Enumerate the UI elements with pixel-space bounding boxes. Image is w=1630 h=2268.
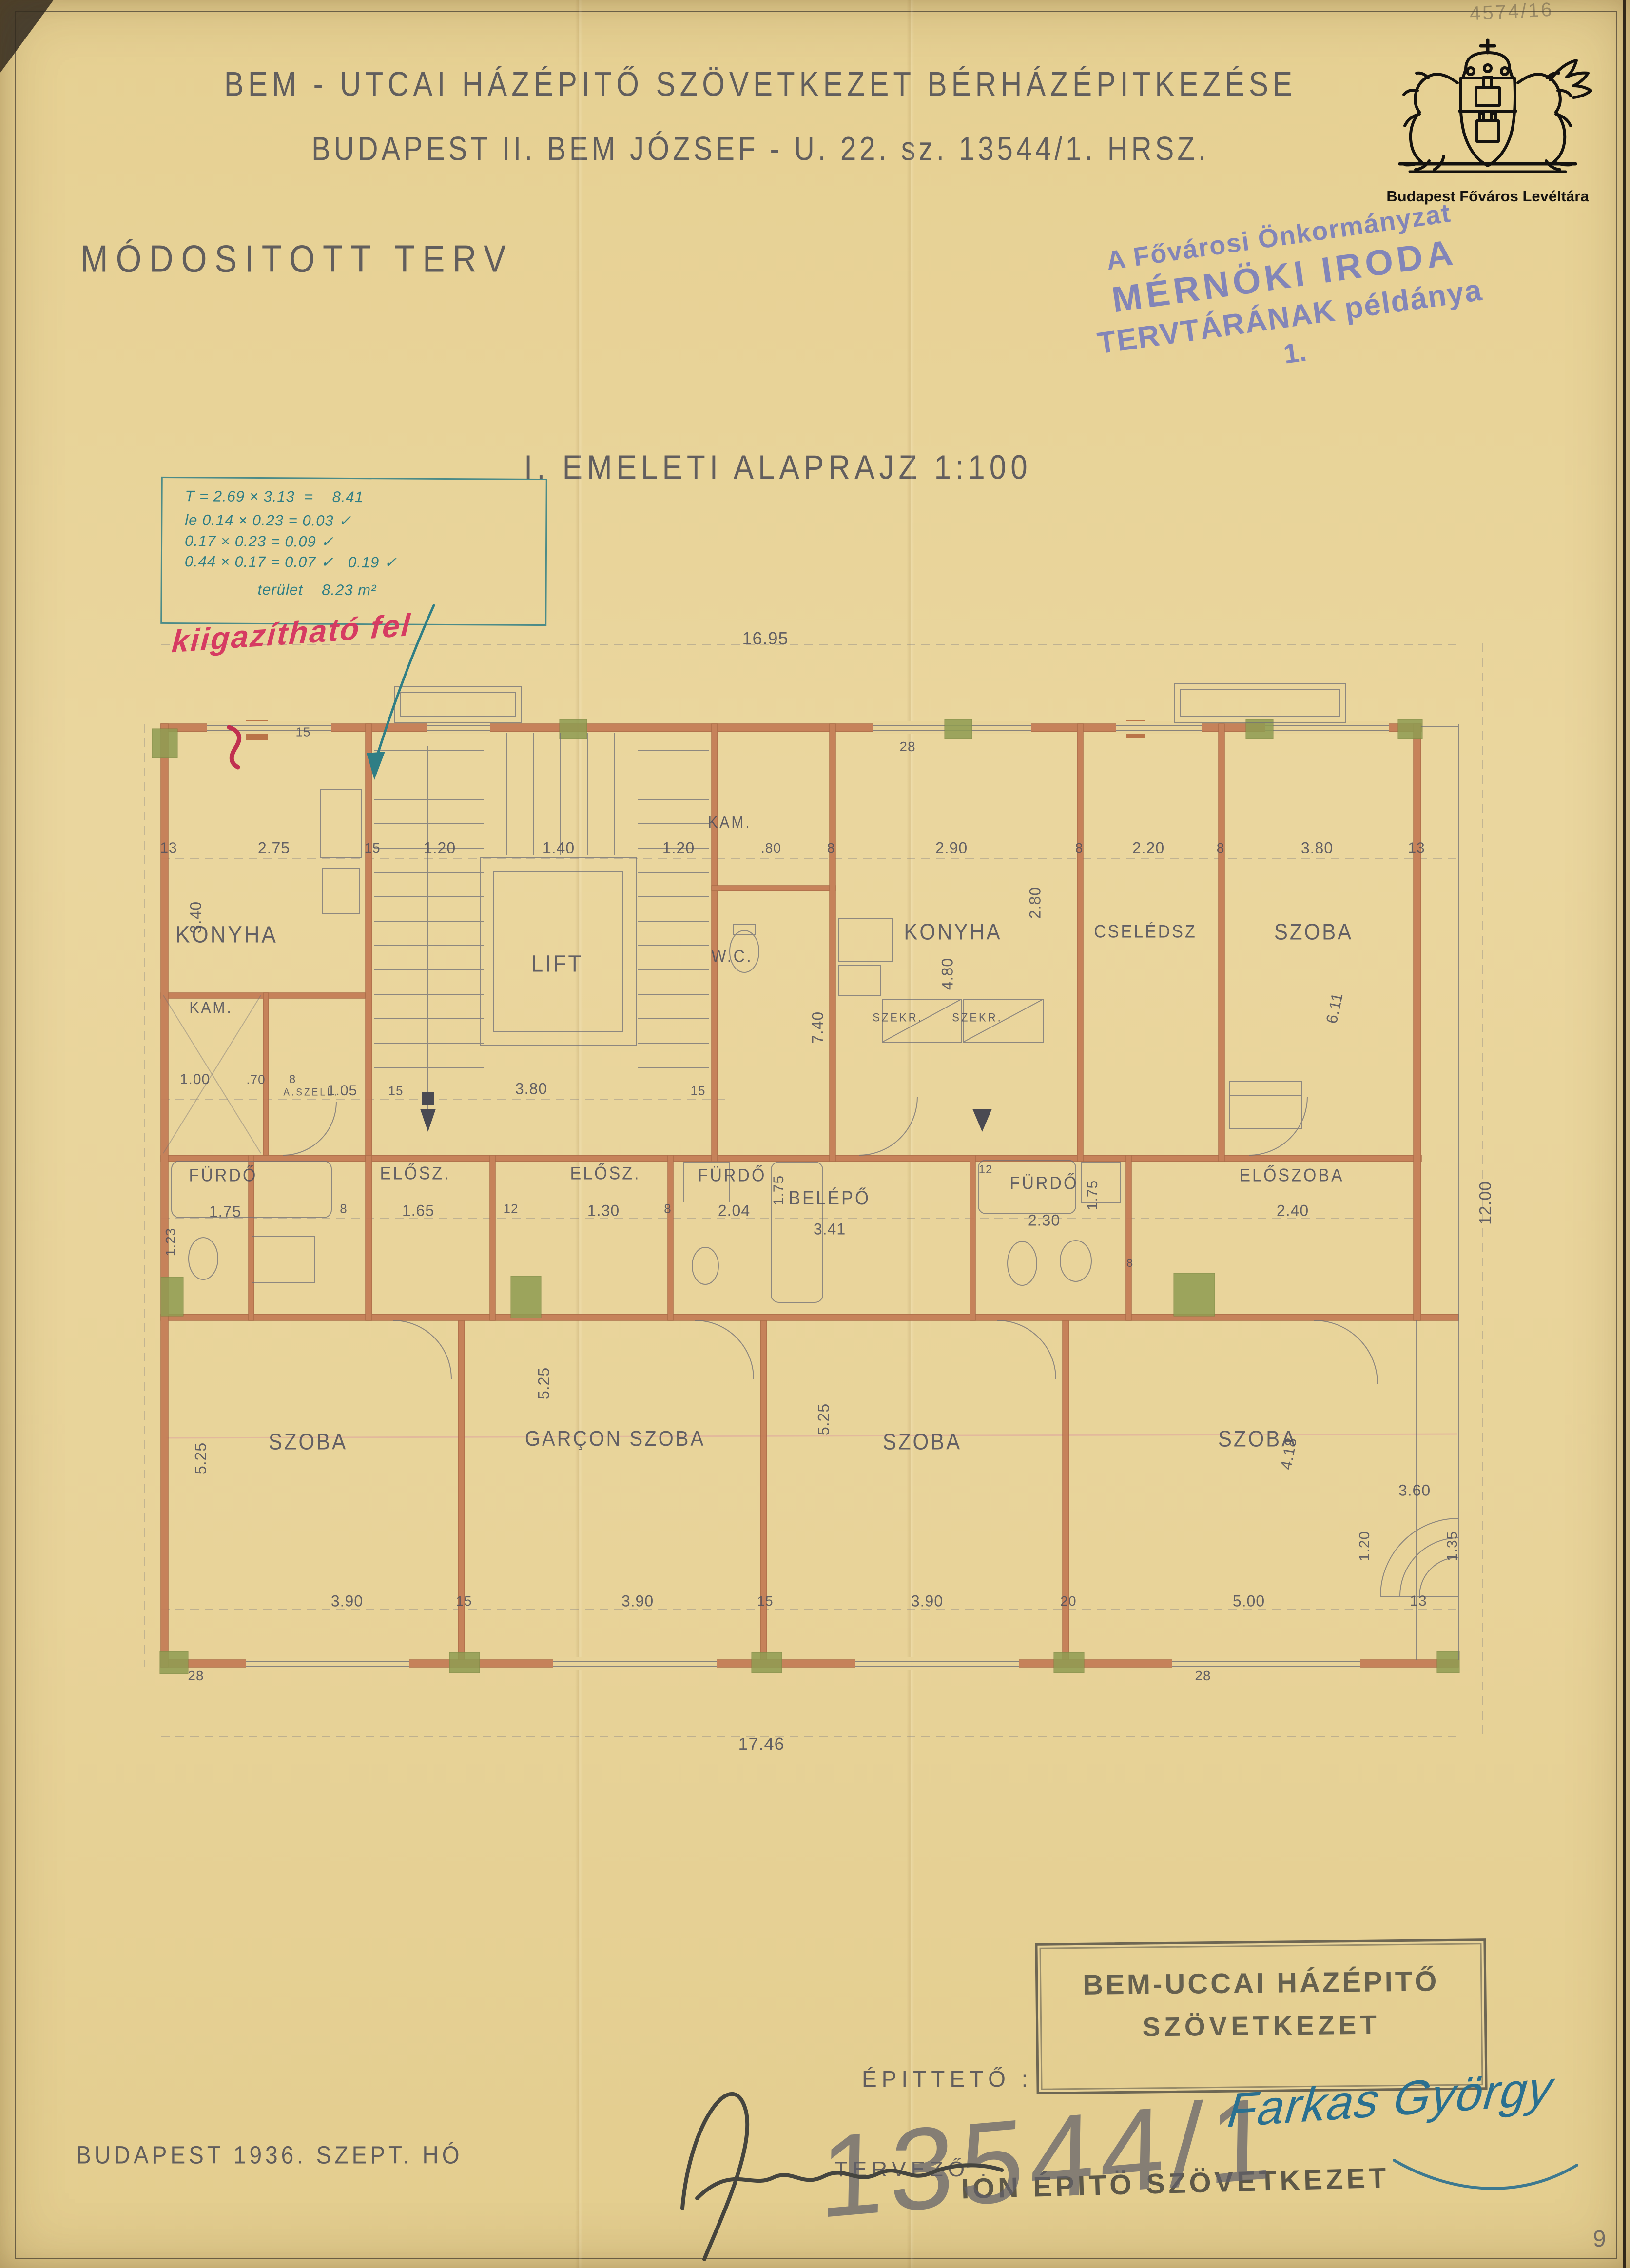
dim-label: 3.90 xyxy=(621,1592,654,1610)
dim-label: 8 xyxy=(1126,1257,1133,1270)
dim-label: 15 xyxy=(691,1084,706,1099)
coat-of-arms-icon xyxy=(1371,33,1605,184)
dim-label: 7.40 xyxy=(809,1011,827,1044)
dim-label: 1.23 xyxy=(163,1228,178,1257)
dim-label: 15 xyxy=(757,1593,773,1609)
dim-label: 15 xyxy=(388,1084,404,1099)
dim-label: 28 xyxy=(188,1668,204,1684)
room-label: BELÉPŐ xyxy=(789,1187,871,1209)
dim-label: 5.25 xyxy=(535,1367,553,1399)
builder-stamp-line1: BEM-UCCAI HÁZÉPITŐ xyxy=(1038,1964,1484,2002)
dim-label: 5.25 xyxy=(815,1403,833,1435)
calc-line: 0.17 × 0.23 = 0.09 ✓ xyxy=(185,531,531,553)
room-label: SZEKR. xyxy=(873,1011,923,1025)
dim-label: 2.20 xyxy=(1132,839,1164,857)
dim-label: 16.95 xyxy=(742,628,788,649)
dim-label: 8 xyxy=(664,1202,671,1217)
dim-label: 6.11 xyxy=(1322,991,1346,1025)
dim-label: 1.35 xyxy=(1444,1531,1461,1561)
floor-plan: KONYHALIFTKAM.W.C.KONYHACSELÉDSZSZOBAKAM… xyxy=(122,629,1496,1764)
scanned-blueprint-sheet: { "header": { "title_line1": "BEM - UTCA… xyxy=(0,0,1630,2268)
dim-label: 4.80 xyxy=(939,958,957,990)
calc-line: le 0.14 × 0.23 = 0.03 ✓ xyxy=(185,510,531,532)
room-label: SZOBA xyxy=(269,1429,348,1455)
dim-label: 3.60 xyxy=(1398,1482,1431,1500)
dim-label: 2.75 xyxy=(258,839,290,857)
dim-label: 8 xyxy=(1075,840,1084,856)
dim-label: 1.05 xyxy=(327,1083,357,1099)
archive-logo: Budapest Főváros Levéltára xyxy=(1371,33,1605,205)
dim-label: 3.80 xyxy=(515,1080,547,1098)
room-label: FÜRDŐ xyxy=(698,1165,767,1186)
dim-label: 1.30 xyxy=(587,1202,620,1220)
plan-labels: KONYHALIFTKAM.W.C.KONYHACSELÉDSZSZOBAKAM… xyxy=(122,629,1496,1764)
calc-lines: T = 2.69 × 3.13 = 8.41le 0.14 × 0.23 = 0… xyxy=(184,486,531,602)
room-label: SZOBA xyxy=(1274,919,1353,945)
area-calculation-box: T = 2.69 × 3.13 = 8.41le 0.14 × 0.23 = 0… xyxy=(160,477,547,626)
room-label: ELŐSZ. xyxy=(380,1163,451,1184)
dim-label: 2.40 xyxy=(1277,1202,1309,1220)
dim-label: 5.00 xyxy=(1233,1592,1265,1610)
dim-label: 28 xyxy=(899,739,915,755)
dim-label: 1.00 xyxy=(180,1071,210,1088)
dim-label: 1.20 xyxy=(662,839,695,857)
room-label: GARÇON SZOBA xyxy=(525,1427,705,1451)
dim-label: .70 xyxy=(246,1072,265,1087)
dim-label: 1.20 xyxy=(424,839,456,857)
room-label: SZEKR. xyxy=(952,1011,1002,1025)
dim-label: 8 xyxy=(289,1073,296,1086)
room-label: ELŐSZ. xyxy=(570,1163,641,1184)
dim-label: 12 xyxy=(504,1202,519,1217)
dim-label: 2.30 xyxy=(1028,1212,1060,1230)
builder-stamp-line2: SZÖVETKEZET xyxy=(1038,2008,1485,2044)
room-label: LIFT xyxy=(531,951,583,978)
dim-label: 28 xyxy=(1195,1668,1211,1684)
dim-label: 3.80 xyxy=(1301,839,1333,857)
dim-label: .80 xyxy=(761,840,781,856)
dim-label: 2.80 xyxy=(1027,887,1045,919)
room-label: KAM. xyxy=(708,814,751,832)
dim-label: 13 xyxy=(1408,840,1425,856)
room-label: SZOBA xyxy=(883,1429,962,1455)
dim-label: 3.90 xyxy=(331,1592,363,1610)
dim-label: 1.20 xyxy=(1357,1531,1373,1561)
calc-line: 0.44 × 0.17 = 0.07 ✓ 0.19 ✓ xyxy=(185,551,531,574)
room-label: ELŐSZOBA xyxy=(1239,1165,1344,1186)
dim-label: 1.65 xyxy=(402,1202,434,1220)
dim-label: 3.90 xyxy=(911,1592,943,1610)
room-label: CSELÉDSZ xyxy=(1094,922,1197,943)
dim-label: 13 xyxy=(160,840,177,856)
dim-label: 1.40 xyxy=(543,839,575,857)
dim-label: 8 xyxy=(827,840,835,856)
dim-label: 1.75 xyxy=(1085,1180,1101,1210)
dim-label: 2.04 xyxy=(718,1202,750,1220)
dim-label: 15 xyxy=(296,725,311,740)
dim-label: 3.41 xyxy=(814,1221,846,1239)
scan-edge xyxy=(1623,0,1626,2268)
room-label: FÜRDŐ xyxy=(189,1165,258,1186)
dim-label: 20 xyxy=(1060,1593,1076,1609)
dim-label: 2.90 xyxy=(935,839,968,857)
dim-label: 5.25 xyxy=(192,1442,210,1474)
dim-label: 13 xyxy=(1410,1593,1427,1609)
dim-label: 12 xyxy=(979,1163,993,1177)
dim-label: 17.46 xyxy=(738,1734,784,1754)
dim-label: 8 xyxy=(1217,840,1225,856)
dim-label: 1.75 xyxy=(209,1203,241,1221)
room-label: KAM. xyxy=(189,999,233,1017)
room-label: FÜRDŐ xyxy=(1010,1173,1079,1194)
room-label: KONYHA xyxy=(904,919,1002,945)
room-label: W.C. xyxy=(711,947,753,967)
dim-label: 15 xyxy=(456,1593,472,1609)
dim-label: 3.40 xyxy=(187,901,205,933)
dim-label: 12.00 xyxy=(1476,1181,1495,1225)
dim-label: 1.75 xyxy=(771,1175,787,1205)
calc-line: T = 2.69 × 3.13 = 8.41 xyxy=(185,486,531,508)
calc-line: terület 8.23 m² xyxy=(257,580,530,602)
dim-label: 15 xyxy=(364,840,380,856)
dim-label: 8 xyxy=(340,1202,347,1217)
